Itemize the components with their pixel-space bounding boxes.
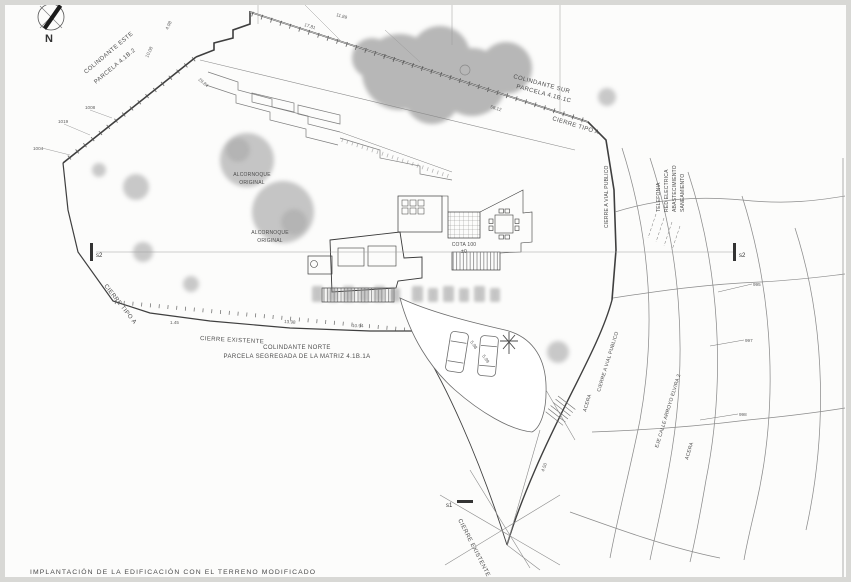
dim-1-45: 1.45	[170, 320, 179, 325]
label-cierre-existente-west: CIERRE EXISTENTE	[200, 336, 264, 345]
contour-leader-lines	[700, 284, 752, 420]
label-colindante-este-2: PARCELA 4.1B.2	[93, 47, 137, 85]
label-cierre-existente-south: CIERRE EXISTENTE	[456, 518, 490, 578]
dim-29-84: 29.84	[197, 77, 209, 89]
section-label-s2-left: s2	[96, 253, 103, 259]
section-marker-s1	[457, 500, 473, 503]
label-telefonia: TELEFONIA	[656, 182, 662, 212]
house-plan	[308, 190, 532, 302]
tiled-terrace	[448, 212, 480, 238]
label-alcornoque-1b: ORIGINAL	[239, 180, 265, 186]
label-colindante-norte-2: PARCELA SEGREGADA DE LA MATRIZ 4.1B.1A	[223, 354, 370, 360]
site-plan-sheet: N COLINDANTE ESTE PARCELA 4.1B.2 COLINDA…	[0, 0, 851, 582]
dim-13-98: 13.98	[284, 319, 296, 325]
label-eje-calle: EJE CALLE ARROYO ELVIRA 2	[654, 373, 682, 448]
house-main-outline	[330, 232, 422, 292]
tree-alcornoque-1	[220, 133, 274, 187]
label-cierre-tipo-a-west: CIERRE TIPO A	[102, 284, 137, 326]
label-colindante-norte-1: COLINDANTE NORTE	[263, 345, 331, 351]
north-label: N	[45, 33, 53, 45]
contour-label-1: 995	[753, 282, 761, 287]
section-label-s2-right: s2	[739, 253, 746, 259]
pergola-1	[452, 252, 500, 270]
label-saneamiento: SANEAMIENTO	[680, 173, 686, 212]
label-cierre-vial-upper: CIERRE A VIAL PUBLICO	[604, 165, 610, 228]
stake-label-2: 1019	[58, 119, 69, 124]
dim-11-89: 11.89	[336, 12, 349, 20]
label-alcornoque-2a: ALCORNOQUE	[251, 230, 289, 236]
label-cota-ref: ±0	[461, 249, 467, 255]
label-alcornoque-1a: ALCORNOQUE	[233, 172, 271, 178]
label-alcornoque-2b: ORIGINAL	[257, 238, 283, 244]
label-acera-upper: ACERA	[582, 393, 593, 413]
label-abastecimiento: ABASTECIMIENTO	[672, 165, 678, 212]
section-label-s1: s1	[446, 503, 453, 509]
label-cierre-vial-lower: CIERRE A VIAL PUBLICO	[596, 331, 620, 393]
contour-label-2: 997	[745, 338, 753, 343]
dining-table	[489, 209, 519, 239]
stairs	[546, 396, 576, 425]
driveway-outline	[400, 298, 546, 432]
site-plan-drawing: N COLINDANTE ESTE PARCELA 4.1B.2 COLINDA…	[0, 0, 851, 582]
utility-leader-lines	[648, 214, 680, 250]
label-cota: COTA 100	[452, 242, 477, 248]
dim-4-98: 4.98	[164, 20, 172, 31]
driveway-group	[400, 298, 575, 432]
retaining-wall-hatch	[342, 140, 451, 177]
contour-label-3: 998	[739, 412, 747, 417]
drawing-caption: IMPLANTACIÓN DE LA EDIFICACIÓN CON EL TE…	[30, 567, 316, 576]
north-compass-icon	[38, 4, 64, 30]
section-line-s2	[90, 243, 736, 261]
label-red-electrica: RED ELECTRICA	[664, 169, 670, 212]
stake-label-1: 1004	[33, 146, 44, 151]
fence-west	[63, 57, 196, 163]
label-acera-lower: ACERA	[684, 441, 695, 461]
boundary-west-south	[63, 163, 412, 331]
dim-10-08: 10.08	[144, 45, 154, 58]
dim-10-94: 10.94	[352, 323, 364, 328]
dim-58-12: 58.12	[490, 104, 503, 112]
terrace-grid-tables	[402, 200, 424, 214]
stake-label-3: 1008	[85, 105, 96, 110]
dim-17-81: 17.81	[304, 22, 317, 30]
sheet-frame-edge	[843, 155, 848, 578]
dim-4-50: 4.50	[540, 462, 548, 473]
